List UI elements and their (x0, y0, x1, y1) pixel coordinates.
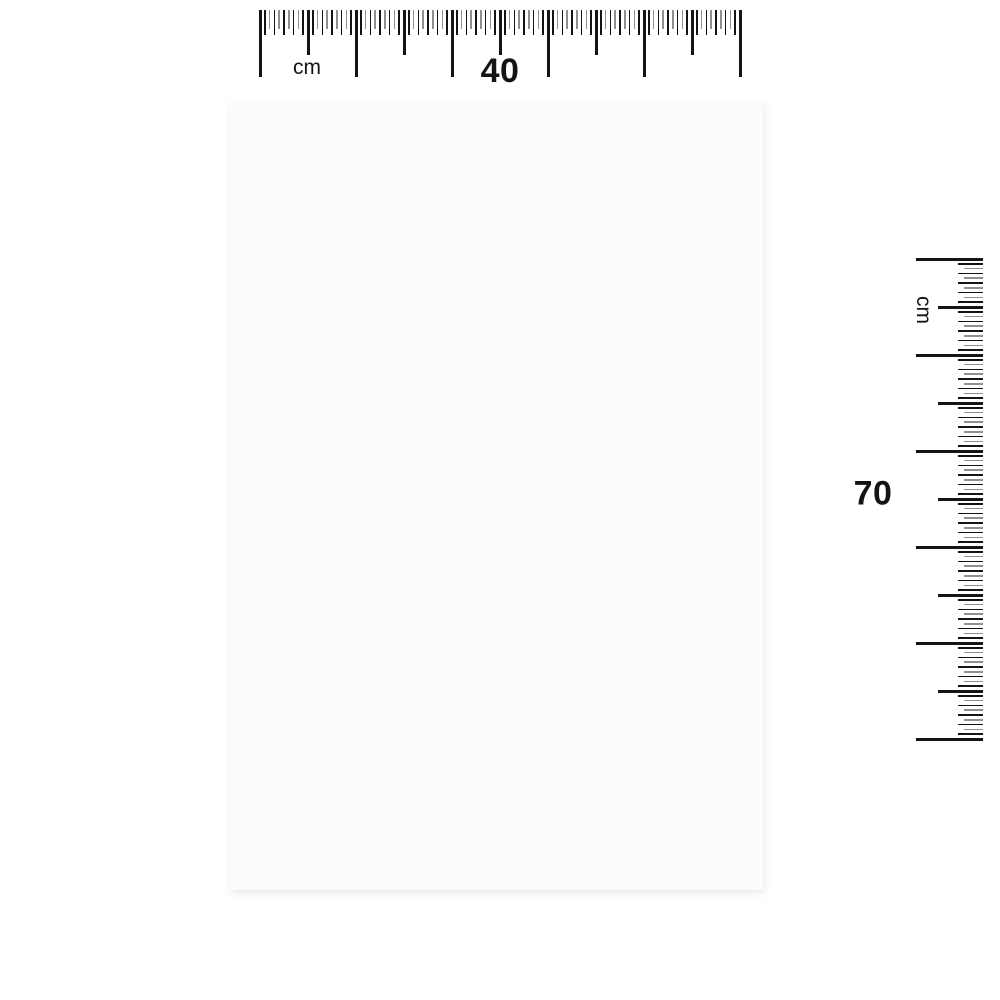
ruler-horizontal-tick (326, 10, 328, 29)
ruler-horizontal-tick (624, 10, 626, 29)
ruler-horizontal-tick (475, 10, 477, 35)
ruler-horizontal-tick (677, 10, 679, 35)
ruler-vertical-tick (958, 436, 983, 438)
ruler-vertical-tick (964, 661, 983, 663)
ruler-vertical-tick (964, 364, 983, 366)
ruler-horizontal-tick (346, 10, 348, 29)
ruler-vertical-tick (958, 657, 983, 659)
ruler-horizontal-tick (422, 10, 424, 29)
ruler-vertical-tick (958, 263, 983, 265)
ruler-vertical-tick (958, 369, 983, 371)
ruler-horizontal-tick (710, 10, 712, 29)
ruler-horizontal-tick (302, 10, 304, 35)
ruler-vertical-tick (958, 666, 983, 668)
ruler-vertical-tick (964, 277, 983, 279)
ruler-vertical-tick (964, 268, 983, 270)
ruler-vertical-tick (958, 359, 983, 361)
ruler-vertical-tick (958, 292, 983, 294)
ruler-horizontal-tick (730, 10, 732, 29)
ruler-vertical-tick (958, 618, 983, 620)
ruler-horizontal-tick (682, 10, 684, 29)
ruler-horizontal-tick (331, 10, 333, 35)
ruler-horizontal-tick (394, 10, 396, 29)
ruler-horizontal-tick (514, 10, 516, 35)
ruler-vertical-tick (964, 460, 983, 462)
ruler-horizontal-tick (403, 10, 406, 55)
ruler-horizontal-tick (715, 10, 717, 35)
ruler-vertical-tick (958, 705, 983, 707)
ruler-vertical-tick (964, 633, 983, 635)
ruler-horizontal-tick (336, 10, 338, 29)
ruler-horizontal-tick (499, 10, 502, 55)
ruler-horizontal-tick (456, 10, 458, 35)
ruler-vertical-tick (964, 421, 983, 423)
ruler-horizontal-tick (523, 10, 525, 35)
ruler-vertical-tick (964, 479, 983, 481)
ruler-vertical-tick (938, 498, 983, 501)
ruler-vertical-tick (958, 724, 983, 726)
ruler-horizontal-tick (278, 10, 280, 29)
ruler-vertical-tick (958, 570, 983, 572)
ruler-vertical-tick (938, 306, 983, 309)
poster-canvas (229, 100, 763, 890)
ruler-vertical-unit-label: cm (911, 296, 935, 324)
ruler-horizontal-tick (365, 10, 367, 29)
ruler-horizontal-tick (600, 10, 602, 35)
ruler-vertical-tick (964, 345, 983, 347)
ruler-vertical-tick (916, 738, 983, 741)
ruler-horizontal-tick (283, 10, 285, 35)
ruler-vertical-tick (964, 556, 983, 558)
ruler-vertical-tick (958, 493, 983, 495)
ruler-vertical-tick (964, 287, 983, 289)
ruler-horizontal-tick (590, 10, 592, 35)
ruler-vertical-tick (964, 575, 983, 577)
ruler-vertical-tick (958, 484, 983, 486)
ruler-vertical-tick (958, 397, 983, 399)
ruler-vertical-tick (958, 474, 983, 476)
ruler-horizontal-tick (605, 10, 607, 29)
ruler-horizontal-tick (557, 10, 559, 29)
ruler-vertical-tick (964, 431, 983, 433)
ruler-horizontal-tick (418, 10, 420, 35)
ruler-vertical-tick (958, 340, 983, 342)
ruler-horizontal-tick (629, 10, 631, 35)
ruler-horizontal-tick (586, 10, 588, 29)
ruler-horizontal-tick (269, 10, 271, 29)
ruler-horizontal-tick (274, 10, 276, 35)
ruler-horizontal-tick (610, 10, 612, 35)
ruler-horizontal-tick (504, 10, 506, 35)
ruler-vertical-tick (964, 613, 983, 615)
ruler-horizontal-tick (672, 10, 674, 29)
ruler-horizontal-tick (389, 10, 391, 35)
ruler-vertical-tick (958, 628, 983, 630)
ruler-horizontal-tick (725, 10, 727, 35)
ruler-vertical-tick (958, 378, 983, 380)
ruler-vertical-tick (916, 258, 983, 261)
ruler-horizontal-tick (576, 10, 578, 29)
ruler-vertical-tick (958, 599, 983, 601)
ruler-vertical-tick (958, 465, 983, 467)
ruler-vertical-tick (964, 565, 983, 567)
ruler-horizontal-tick (307, 10, 310, 55)
ruler-vertical-value-label: 70 (854, 475, 893, 514)
ruler-horizontal-tick (485, 10, 487, 35)
ruler-vertical-tick (964, 325, 983, 327)
ruler-horizontal-tick (696, 10, 698, 35)
ruler-horizontal-tick (542, 10, 544, 35)
ruler-vertical-tick (958, 551, 983, 553)
ruler-vertical-tick (964, 652, 983, 654)
ruler-horizontal-tick (662, 10, 664, 29)
ruler-horizontal-tick (446, 10, 448, 35)
ruler-vertical-tick (964, 700, 983, 702)
ruler-vertical-tick (958, 714, 983, 716)
ruler-vertical-tick (938, 690, 983, 693)
ruler-vertical-tick (964, 729, 983, 731)
ruler-vertical-tick (958, 580, 983, 582)
ruler-horizontal-tick (374, 10, 376, 29)
ruler-horizontal-tick (562, 10, 564, 35)
ruler-vertical-tick (964, 335, 983, 337)
ruler-horizontal-tick (739, 10, 742, 77)
ruler-horizontal-tick (643, 10, 646, 77)
ruler-vertical-tick (964, 373, 983, 375)
ruler-vertical-tick (916, 450, 983, 453)
ruler-vertical-tick (964, 517, 983, 519)
ruler-vertical-tick (964, 681, 983, 683)
ruler-vertical-tick (964, 489, 983, 491)
ruler-horizontal-tick (370, 10, 372, 35)
ruler-vertical-tick (958, 561, 983, 563)
ruler-vertical-tick (964, 469, 983, 471)
ruler-vertical-tick (958, 541, 983, 543)
ruler-horizontal-tick (470, 10, 472, 29)
ruler-vertical-tick (964, 671, 983, 673)
ruler-vertical-tick (916, 354, 983, 357)
ruler-vertical-tick (958, 445, 983, 447)
ruler-horizontal-tick (442, 10, 444, 29)
ruler-horizontal-tick (317, 10, 319, 29)
ruler-horizontal-value-label: 40 (481, 52, 520, 91)
ruler-horizontal-tick (533, 10, 535, 35)
ruler-vertical-tick (964, 719, 983, 721)
ruler-vertical-tick (958, 513, 983, 515)
ruler-vertical-tick (964, 383, 983, 385)
ruler-horizontal-tick (437, 10, 439, 35)
ruler-horizontal-tick (547, 10, 550, 77)
ruler-vertical-tick (916, 546, 983, 549)
ruler-vertical-tick (964, 393, 983, 395)
ruler-horizontal-tick (288, 10, 290, 29)
ruler-horizontal-tick (595, 10, 598, 55)
ruler-horizontal-tick (538, 10, 540, 29)
ruler-horizontal-tick (427, 10, 429, 35)
ruler-vertical-tick (958, 455, 983, 457)
ruler-horizontal-tick (720, 10, 722, 29)
size-guide-mockup: cm 40 cm 70 (0, 0, 1000, 1000)
ruler-horizontal-tick (466, 10, 468, 35)
ruler-horizontal-tick (259, 10, 262, 77)
ruler-vertical-tick (958, 532, 983, 534)
ruler-horizontal-tick (341, 10, 343, 35)
ruler-horizontal-tick (360, 10, 362, 35)
ruler-vertical-tick (958, 685, 983, 687)
ruler-horizontal-tick (322, 10, 324, 35)
ruler-horizontal-tick (638, 10, 640, 35)
ruler-horizontal-tick (648, 10, 650, 35)
ruler-vertical-tick (958, 407, 983, 409)
ruler-horizontal-tick (408, 10, 410, 35)
ruler-vertical-tick (958, 301, 983, 303)
ruler-vertical-tick (958, 637, 983, 639)
ruler-vertical-tick (964, 527, 983, 529)
ruler-vertical-tick (958, 695, 983, 697)
ruler-vertical-tick (964, 585, 983, 587)
ruler-horizontal-tick (432, 10, 434, 29)
ruler-vertical-tick (964, 441, 983, 443)
ruler-vertical-tick (958, 273, 983, 275)
ruler-vertical-ticks (916, 259, 983, 739)
ruler-horizontal-tick (293, 10, 295, 35)
ruler-vertical-tick (958, 282, 983, 284)
ruler-horizontal-tick (490, 10, 492, 29)
ruler-horizontal-tick (571, 10, 573, 35)
ruler-horizontal-tick (528, 10, 530, 29)
ruler-horizontal-tick (614, 10, 616, 29)
ruler-vertical-tick (958, 330, 983, 332)
ruler-vertical-tick (958, 522, 983, 524)
ruler-vertical-tick (958, 426, 983, 428)
ruler-horizontal-tick (691, 10, 694, 55)
ruler-vertical-tick (958, 609, 983, 611)
ruler-horizontal-tick (413, 10, 415, 29)
ruler-horizontal-tick (509, 10, 511, 29)
ruler-vertical-tick (964, 537, 983, 539)
ruler-vertical-tick (958, 321, 983, 323)
ruler-vertical-tick (938, 402, 983, 405)
ruler-horizontal-tick (619, 10, 621, 35)
ruler-horizontal-tick (379, 10, 381, 35)
ruler-horizontal-tick (384, 10, 386, 29)
ruler-horizontal-tick (701, 10, 703, 29)
ruler-horizontal-unit-label: cm (293, 56, 321, 80)
ruler-horizontal-tick (706, 10, 708, 35)
ruler-vertical-tick (938, 594, 983, 597)
ruler-horizontal-tick (518, 10, 520, 29)
ruler-horizontal-tick (494, 10, 496, 35)
ruler-horizontal-tick (634, 10, 636, 29)
ruler-horizontal-tick (350, 10, 352, 35)
ruler-vertical-tick (958, 503, 983, 505)
ruler-horizontal-tick (653, 10, 655, 29)
ruler-vertical-tick (958, 388, 983, 390)
ruler-vertical-tick (964, 316, 983, 318)
ruler-vertical-tick (958, 311, 983, 313)
ruler-horizontal-tick (461, 10, 463, 29)
ruler-horizontal-tick (312, 10, 314, 35)
ruler-vertical-tick (964, 709, 983, 711)
ruler-vertical-tick (958, 733, 983, 735)
ruler-horizontal-tick (734, 10, 736, 35)
ruler-vertical-tick (964, 412, 983, 414)
ruler-horizontal-tick (686, 10, 688, 35)
ruler-vertical-tick (964, 623, 983, 625)
ruler-vertical-tick (958, 676, 983, 678)
ruler-horizontal-tick (398, 10, 400, 35)
ruler-horizontal-tick (451, 10, 454, 77)
ruler-vertical-tick (958, 647, 983, 649)
ruler-horizontal-tick (658, 10, 660, 35)
ruler-horizontal-tick (480, 10, 482, 29)
ruler-horizontal-tick (298, 10, 300, 29)
ruler-vertical-tick (964, 297, 983, 299)
ruler-horizontal-tick (566, 10, 568, 29)
ruler-vertical-tick (964, 508, 983, 510)
ruler-vertical-tick (916, 642, 983, 645)
ruler-horizontal-tick (355, 10, 358, 77)
ruler-horizontal-tick (264, 10, 266, 35)
ruler-vertical-tick (958, 417, 983, 419)
ruler-horizontal-tick (581, 10, 583, 35)
ruler-horizontal-tick (667, 10, 669, 35)
ruler-vertical-tick (958, 589, 983, 591)
ruler-horizontal-tick (552, 10, 554, 35)
ruler-vertical-tick (964, 604, 983, 606)
ruler-vertical-tick (958, 349, 983, 351)
